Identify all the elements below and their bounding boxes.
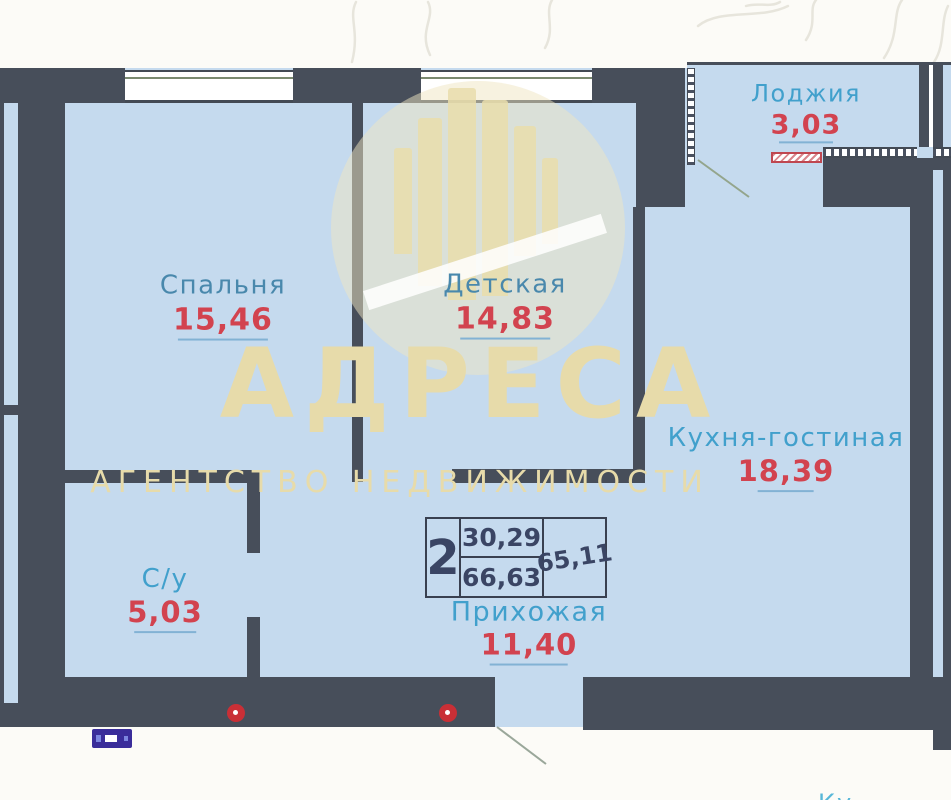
room-nursery: Детская 14,83 bbox=[443, 271, 567, 340]
floor-plan: АДРЕСА АГЕНТСТВО НЕДВИЖИМОСТИ Спальня 15… bbox=[0, 0, 951, 800]
room-bedroom: Спальня 15,46 bbox=[160, 272, 286, 341]
apartment-stamp: 2 30,29 66,63 65,11 bbox=[425, 517, 607, 598]
room-bathroom: С/у 5,03 bbox=[127, 565, 203, 633]
room-loggia: Лоджия 3,03 bbox=[751, 80, 861, 143]
room-bathroom-label: С/у bbox=[142, 565, 189, 595]
stamp-rooms-count: 2 bbox=[427, 519, 459, 596]
room-loggia-label: Лоджия bbox=[751, 80, 861, 108]
riser-marker bbox=[227, 704, 245, 722]
room-nursery-label: Детская bbox=[443, 271, 567, 301]
room-hallway-area: 11,40 bbox=[481, 630, 578, 662]
room-kitchen-living: Кухня-гостиная 18,39 bbox=[668, 424, 905, 492]
adjacent-plan-partial-label: Ку bbox=[818, 789, 866, 800]
room-bedroom-label: Спальня bbox=[160, 272, 286, 302]
entrance-marker bbox=[92, 729, 132, 748]
room-bathroom-area: 5,03 bbox=[127, 597, 203, 629]
area-underline bbox=[779, 142, 833, 144]
room-bedroom-area: 15,46 bbox=[173, 303, 273, 336]
room-hallway-label: Прихожая bbox=[451, 597, 608, 628]
riser-marker bbox=[439, 704, 457, 722]
annotations: Спальня 15,46 Детская 14,83 Лоджия 3,03 … bbox=[0, 0, 951, 800]
area-underline bbox=[490, 663, 568, 665]
entrance-marker-inner bbox=[105, 735, 117, 742]
room-kitchen-living-label: Кухня-гостиная bbox=[668, 424, 905, 454]
area-underline bbox=[134, 631, 196, 633]
stamp-living-area: 30,29 bbox=[461, 519, 542, 556]
stamp-total-area: 66,63 bbox=[461, 558, 542, 596]
room-kitchen-living-area: 18,39 bbox=[738, 456, 835, 488]
area-underline bbox=[178, 338, 268, 340]
stamp-alt-total-area: 65,11 bbox=[538, 515, 610, 601]
entrance-marker-tick bbox=[96, 735, 101, 742]
area-underline bbox=[460, 337, 550, 339]
entrance-marker-tick bbox=[124, 736, 128, 741]
area-underline bbox=[758, 490, 814, 492]
room-hallway: Прихожая 11,40 bbox=[451, 597, 608, 666]
room-nursery-area: 14,83 bbox=[455, 302, 555, 335]
room-loggia-area: 3,03 bbox=[771, 110, 842, 140]
